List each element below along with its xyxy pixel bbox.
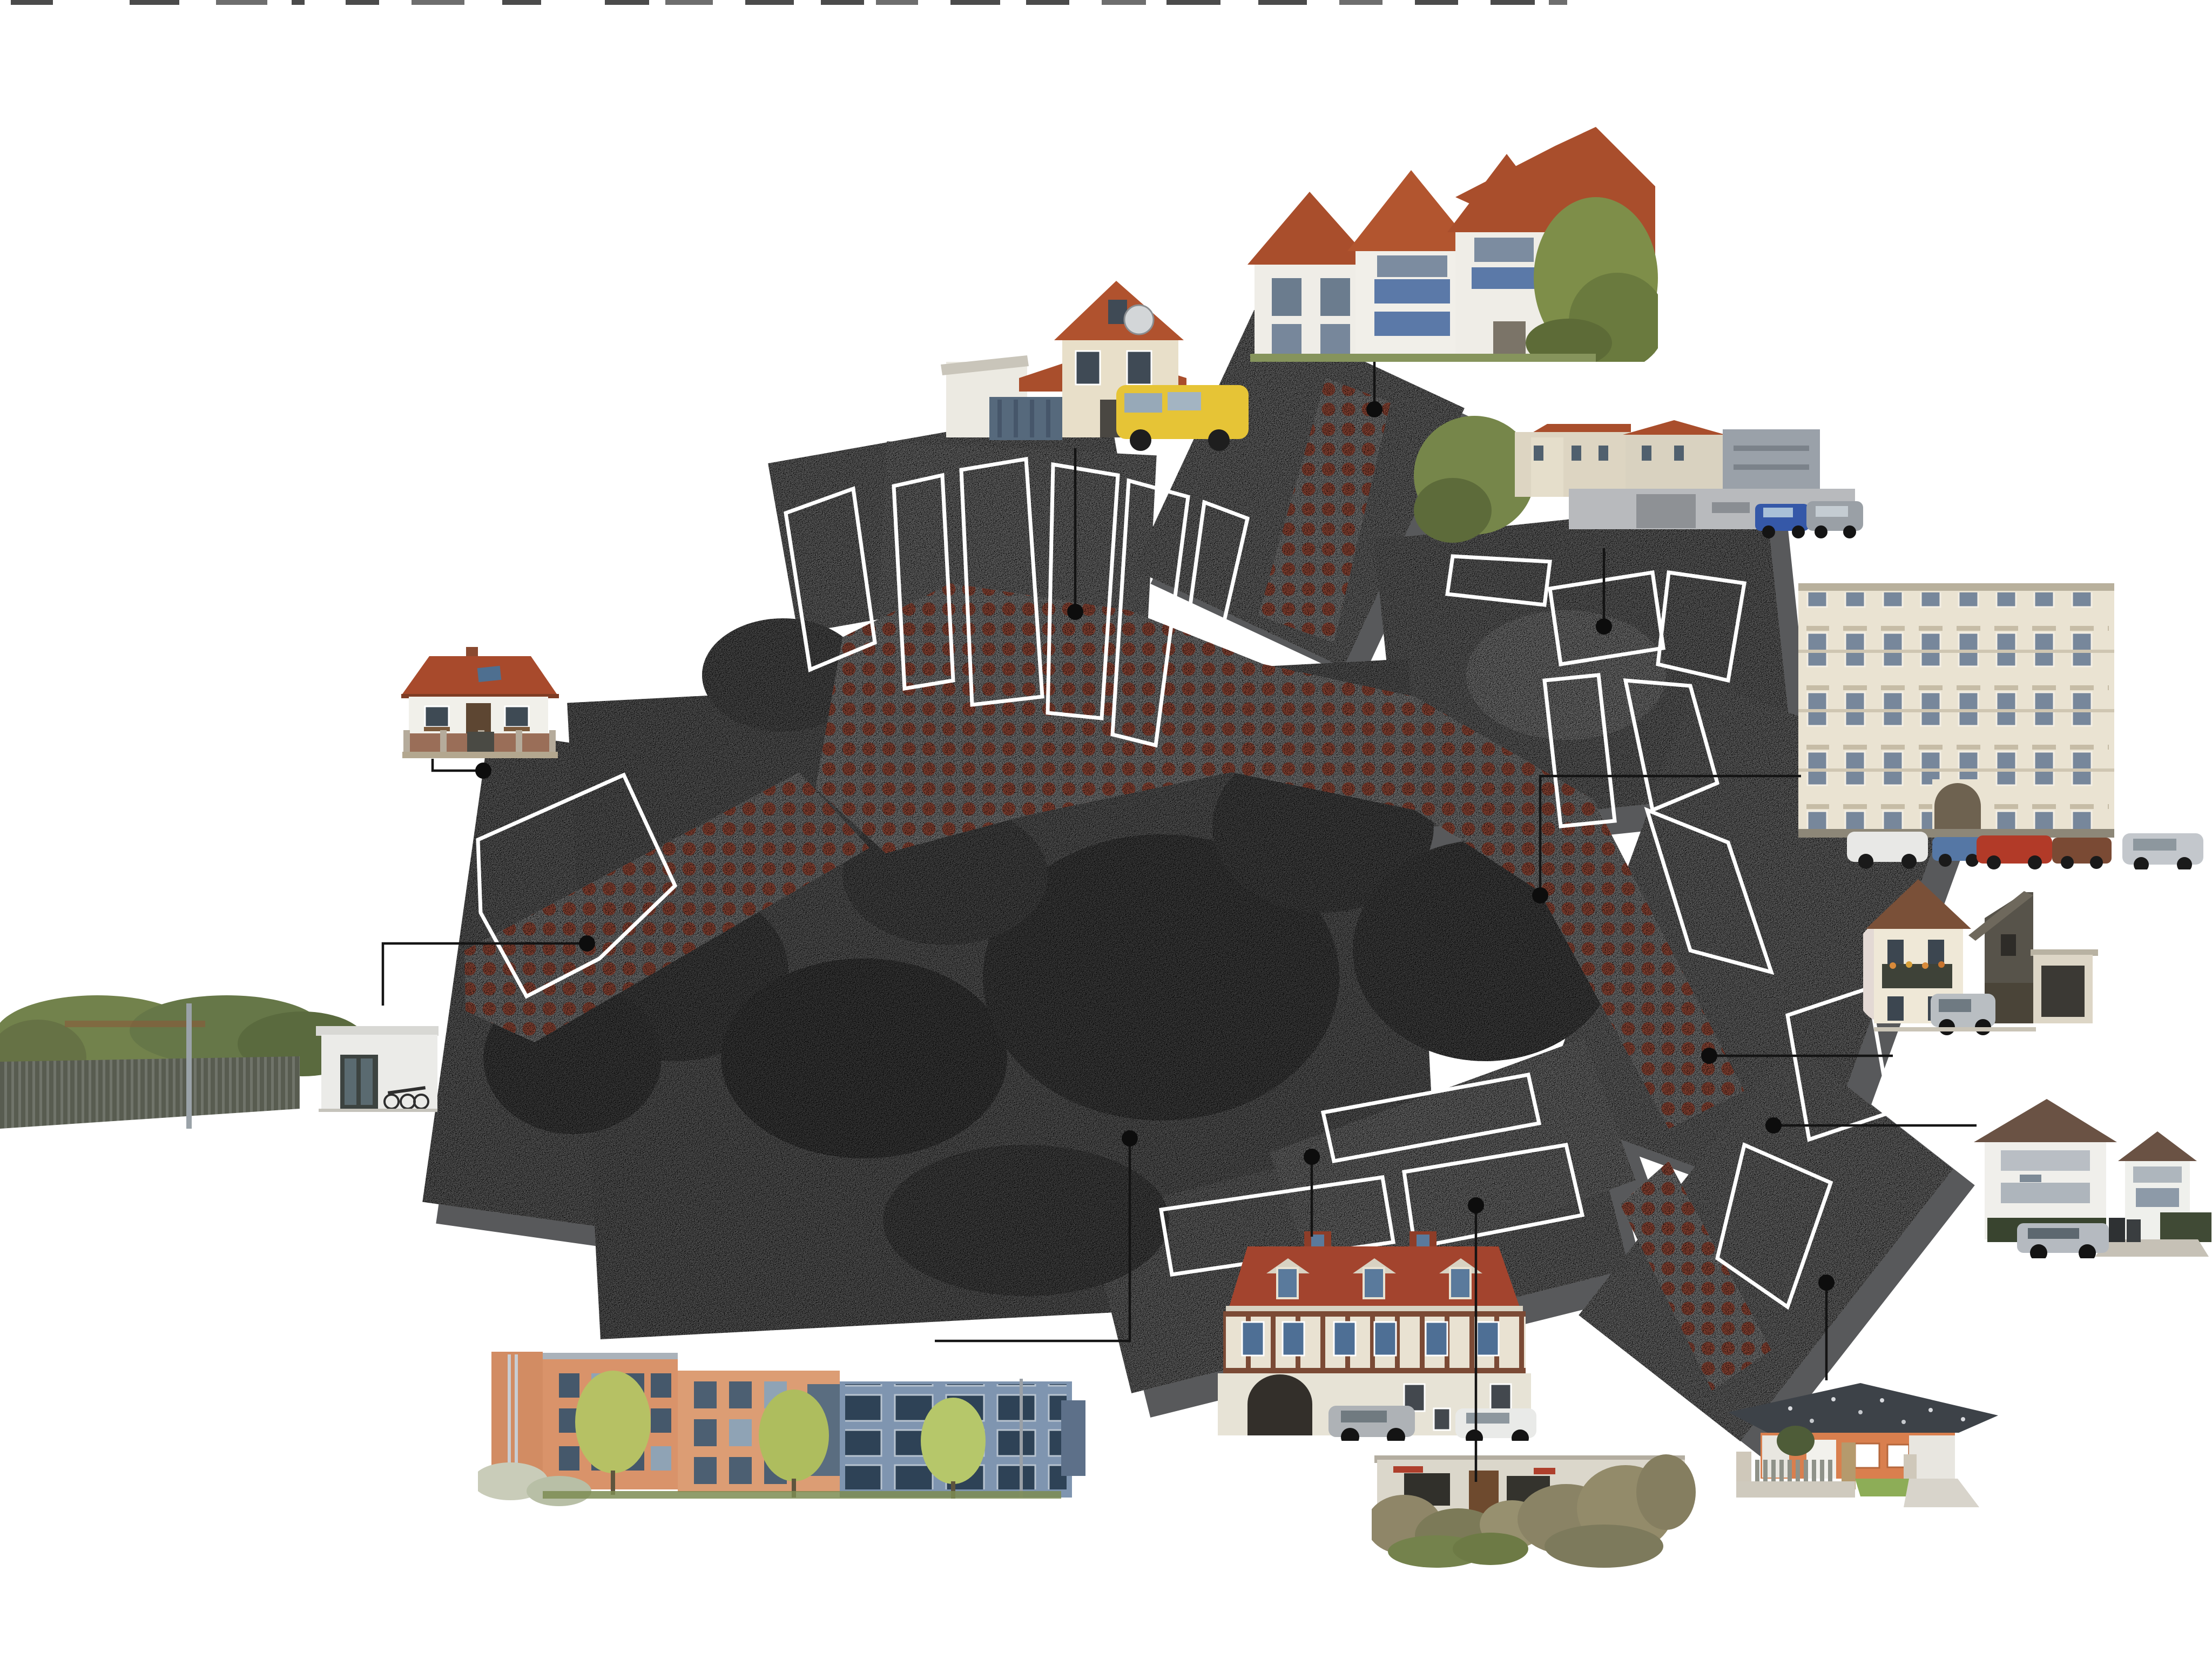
half-timbered-floor bbox=[1223, 1311, 1526, 1373]
overgrown-ruin-photo bbox=[1372, 1444, 1696, 1570]
blue-car bbox=[1755, 504, 1809, 538]
ground bbox=[402, 752, 558, 758]
low-white-building bbox=[316, 1026, 439, 1109]
lamppost bbox=[186, 1003, 192, 1129]
house-with-balcony-and-barn-photo bbox=[1863, 869, 2106, 1045]
garden-fence-strip-photo bbox=[0, 993, 439, 1132]
brick-base-fence bbox=[403, 730, 556, 752]
red-sign bbox=[1534, 1468, 1555, 1474]
garage bbox=[2031, 949, 2098, 1023]
two-white-houses-photo bbox=[1971, 1096, 2212, 1258]
courtyard-apartment-backs-photo bbox=[1410, 413, 1866, 548]
ornate-historic-facade-photo bbox=[1798, 559, 2212, 869]
house-left bbox=[1974, 1099, 2117, 1242]
gravel bbox=[1736, 1481, 1855, 1498]
rear-buildings bbox=[1515, 420, 1820, 497]
gable-left bbox=[1247, 192, 1374, 356]
red-sign bbox=[1393, 1466, 1423, 1473]
grass bbox=[1250, 354, 1596, 362]
parked-cars bbox=[1847, 832, 2203, 869]
bush bbox=[1777, 1426, 1815, 1456]
silver-car bbox=[1806, 501, 1863, 538]
estate-car bbox=[2017, 1223, 2109, 1258]
hipped-roof bbox=[1728, 1383, 1998, 1433]
ground-line bbox=[319, 1109, 437, 1112]
lamppost bbox=[1020, 1379, 1023, 1498]
driveway bbox=[1904, 1479, 1979, 1507]
white-car bbox=[1455, 1408, 1536, 1441]
picket-fence bbox=[0, 1056, 300, 1129]
hipped-roof bbox=[401, 656, 559, 698]
yellow-van bbox=[1116, 385, 1249, 451]
ground bbox=[1874, 1027, 2036, 1031]
blue-gate bbox=[989, 397, 1062, 440]
white-gabled-apartment-building-photo bbox=[1239, 116, 1658, 362]
window bbox=[1855, 1444, 1879, 1468]
grass bbox=[543, 1491, 1061, 1499]
waste-bins bbox=[2109, 1218, 2141, 1242]
arched-entrance bbox=[1934, 783, 1981, 829]
mansard-roof bbox=[1226, 1231, 1523, 1311]
village-house-yellow-van-photo bbox=[938, 270, 1257, 451]
half-timbered-manor-photo bbox=[1196, 1230, 1553, 1441]
collage-stage bbox=[0, 0, 2212, 1659]
silver-sedan bbox=[1328, 1406, 1415, 1441]
orange-bungalow-photo bbox=[1725, 1379, 2004, 1508]
arched-gate bbox=[1247, 1374, 1312, 1435]
small-red-roof-house-photo bbox=[397, 643, 562, 760]
modern-apartment-complex-photo bbox=[478, 1319, 1115, 1519]
facade bbox=[1798, 583, 2114, 838]
